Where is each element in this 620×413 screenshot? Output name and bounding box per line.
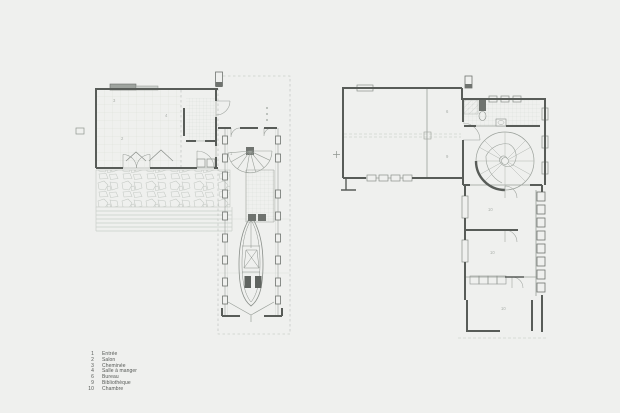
exterior-wall-tick	[76, 128, 84, 134]
wing-columns	[537, 192, 545, 292]
terrace-steps	[96, 207, 232, 231]
salon-tile-floor	[97, 90, 181, 167]
upper-chimney	[465, 76, 472, 88]
legend-item: 10 Chambre	[85, 387, 137, 393]
shower	[464, 100, 478, 114]
upper-exterior-tick	[333, 151, 340, 158]
spiral-staircase	[476, 132, 534, 190]
beam-post	[424, 132, 431, 139]
room-label-chambre-1: 10	[488, 207, 493, 212]
winder-staircase	[228, 147, 272, 173]
boat	[239, 216, 263, 306]
legend-item-label: Chambre	[102, 387, 123, 393]
entry-tile-floor	[186, 98, 215, 141]
sink	[496, 119, 506, 126]
toilet-cistern	[479, 100, 486, 111]
legend-item-number: 10	[85, 387, 94, 393]
ground-floor-plan: 3 4 2 1	[76, 72, 290, 334]
room-label-entree: 1	[230, 151, 233, 156]
room-label-bibliotheque: 9	[446, 154, 449, 159]
upper-floor-plan: 6 9 10 10 10	[333, 76, 548, 338]
stone-terrace	[96, 170, 230, 207]
room-label-bureau: 6	[446, 109, 449, 114]
room-label-chambre-2: 10	[490, 250, 495, 255]
slipway-ramp	[228, 302, 274, 322]
legend: 1 Entrée 2 Salon 3 Cheminée 4 Salle à ma…	[85, 352, 137, 393]
chimney-blocks	[110, 72, 223, 90]
room-label-chambre-3: 10	[501, 306, 506, 311]
